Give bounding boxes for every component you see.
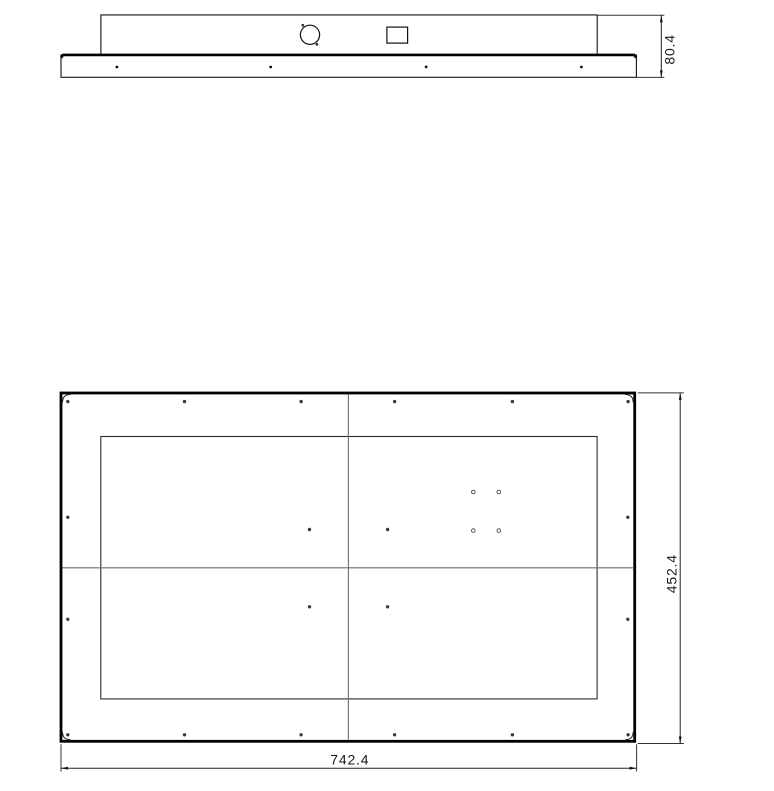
- svg-text:80.4: 80.4: [661, 34, 677, 64]
- svg-text:742.4: 742.4: [330, 752, 369, 768]
- svg-text:452.4: 452.4: [663, 554, 679, 593]
